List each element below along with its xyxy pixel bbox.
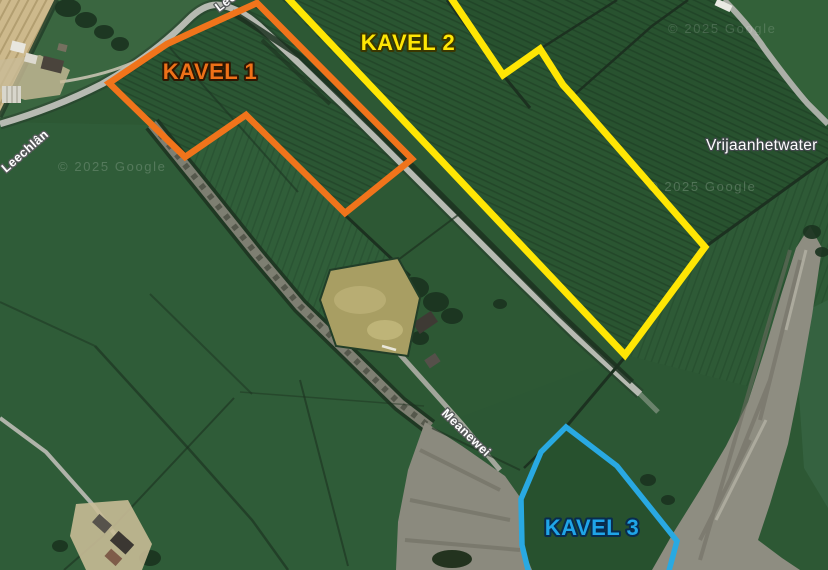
google-watermark: © 2025 Google xyxy=(58,159,166,174)
place-label-vrijaanhetwater: Vrijaanhetwater xyxy=(706,137,818,154)
parcel-label-kavel-3: KAVEL 3 xyxy=(545,515,639,540)
google-watermark: © 2025 Google xyxy=(648,179,756,194)
google-watermark: © 2025 Google xyxy=(668,21,776,36)
satellite-map: © 2025 Google © 2025 Google © 2025 Googl… xyxy=(0,0,828,570)
pond xyxy=(432,550,472,568)
parcel-label-kavel-1: KAVEL 1 xyxy=(163,59,257,84)
parcel-label-kavel-2: KAVEL 2 xyxy=(361,30,455,55)
dry-field xyxy=(320,258,420,356)
map-canvas[interactable]: © 2025 Google © 2025 Google © 2025 Googl… xyxy=(0,0,828,570)
